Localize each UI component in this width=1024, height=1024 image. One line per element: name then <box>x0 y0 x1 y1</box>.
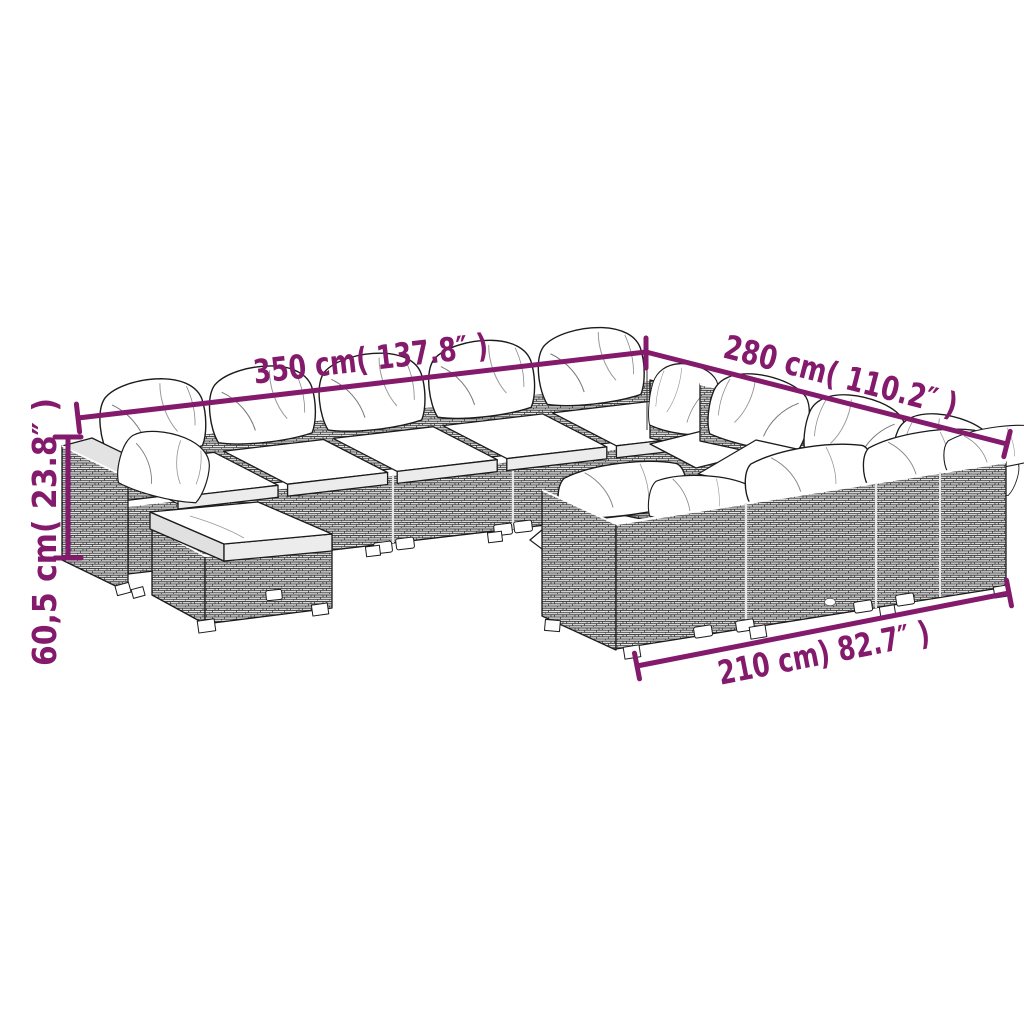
sofa-foot <box>749 625 767 639</box>
dimension-label-height: 60,5 cm( 23.8″ ) <box>25 398 64 666</box>
connector-tab <box>895 593 914 607</box>
ottoman <box>150 502 332 633</box>
connector-tab <box>853 600 872 614</box>
connector-tab <box>513 520 532 533</box>
sofa-foot <box>545 619 561 631</box>
back-pillow <box>534 322 648 410</box>
connector-tab <box>693 625 712 639</box>
sofa-foot <box>365 545 380 557</box>
sofa-set-illustration: 350 cm( 137.8″ ) 280 cm( 110.2″ ) 60,5 c… <box>0 0 1024 1024</box>
sofa-foot <box>623 645 641 659</box>
sofa-foot <box>131 587 145 599</box>
sofa-foot <box>487 531 502 543</box>
connector-tab <box>395 537 414 550</box>
sofa-foot <box>197 619 216 633</box>
product-dimension-diagram: 350 cm( 137.8″ ) 280 cm( 110.2″ ) 60,5 c… <box>0 0 1024 1024</box>
weave-hole <box>825 598 836 606</box>
sofa-foot <box>311 603 328 616</box>
connector-tab <box>266 589 283 601</box>
